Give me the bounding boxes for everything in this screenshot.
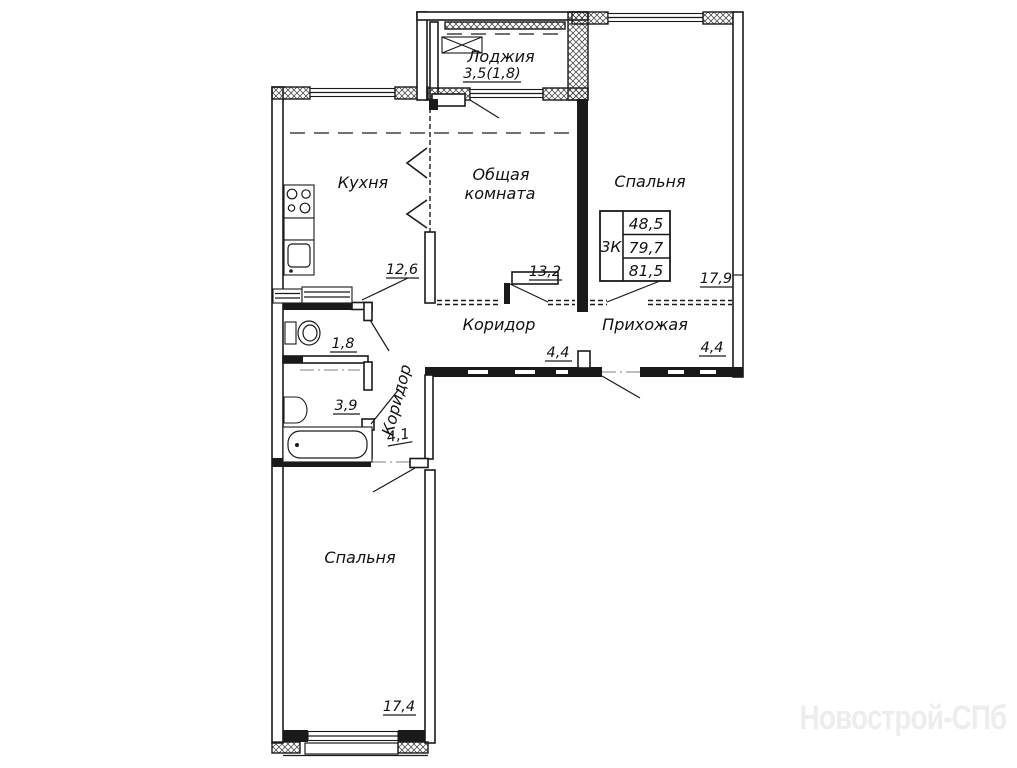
entrance-door-swing	[602, 376, 640, 398]
loggia-wall-top	[417, 12, 588, 20]
balcony-slab	[305, 743, 398, 754]
wc-door-jamb-v	[364, 303, 372, 321]
wc-door-swing	[370, 320, 389, 351]
kitchen-area: 12,6	[386, 262, 418, 278]
living-label-line2: комната	[465, 184, 536, 203]
divider-top-stub	[429, 99, 438, 110]
wall-tick	[468, 370, 488, 374]
wall-tick	[668, 370, 684, 374]
bedroom-top-hatch-left	[572, 12, 608, 24]
entrance-jamb	[578, 351, 590, 368]
wall-hatch-kitchen-left	[272, 87, 310, 99]
stove	[284, 185, 314, 218]
bedroom-door-jamb	[410, 459, 428, 468]
bathtub-drain	[295, 443, 299, 447]
hallway-label: Прихожая	[602, 315, 688, 334]
apartment-type: 3К	[601, 238, 623, 256]
room-labels: Лоджия 3,5(1,8) Кухня 12,6 Общая комната…	[324, 47, 733, 715]
living-label-line1: Общая	[473, 165, 530, 184]
bedroom-bottom-wall-right	[425, 470, 435, 743]
opening-chevron-bottom	[407, 200, 427, 228]
bedroom-top-hatch-right	[703, 12, 734, 24]
small-corridor-label-group: Коридор	[378, 362, 415, 437]
bottom-hatch-left	[272, 742, 300, 753]
bottom-hatch-right	[398, 742, 428, 753]
corridor-label: Коридор	[463, 315, 536, 334]
kitchen-label: Кухня	[338, 173, 389, 192]
loggia-wall-left	[417, 12, 427, 100]
living-area-value: 48,5	[629, 215, 664, 233]
wall-tick	[700, 370, 716, 374]
fixtures	[273, 185, 372, 462]
floor-area-value: 79,7	[629, 239, 664, 257]
bedroom-right-door-swing	[607, 281, 660, 302]
cabinet-right	[302, 287, 352, 303]
wall-tick	[515, 370, 535, 374]
loggia-wall-right-hatch	[568, 12, 588, 100]
loggia-bottom-hatch-right	[543, 88, 588, 100]
cabinet-left	[273, 289, 302, 303]
toilet	[285, 321, 320, 345]
info-table: 3К 48,5 79,7 81,5	[600, 211, 670, 281]
floor-plan-canvas: Новострой-СПб	[0, 0, 1017, 768]
hallway-bottom-wall	[640, 367, 743, 377]
corridor-area: 4,4	[546, 345, 569, 361]
bedroom-right-area: 17,9	[700, 271, 732, 287]
watermark-text: Новострой-СПб	[800, 698, 1007, 736]
bath-right-wall-top	[364, 362, 372, 390]
living-area: 13,2	[529, 264, 561, 280]
washbasin	[284, 397, 307, 423]
loggia-glazing	[445, 22, 565, 29]
bathroom-area: 3,9	[334, 398, 357, 414]
hallway-area: 4,4	[700, 340, 723, 356]
kitchen-counter	[284, 218, 314, 240]
toilet-bowl-inner	[303, 325, 317, 341]
bedroom-bottom-door-swing	[373, 468, 415, 492]
toilet-tank	[285, 322, 296, 344]
wall-tick	[556, 370, 568, 374]
bedroom-bottom-label: Спальня	[324, 548, 396, 567]
wc-area: 1,8	[331, 336, 354, 352]
kitchen-sink	[284, 240, 314, 275]
wc-bath-divider-solid	[283, 356, 303, 363]
corridor-bottom-wall	[425, 367, 602, 377]
wall-right-outer	[733, 12, 743, 377]
opening-chevron-top	[407, 148, 427, 178]
kitchen-cabinet	[273, 287, 352, 303]
balcony-door-swing	[470, 100, 499, 118]
exterior-walls	[272, 12, 743, 756]
loggia-label: Лоджия	[466, 47, 535, 66]
living-bedroom-wall	[577, 99, 588, 312]
bathtub	[283, 427, 372, 462]
living-door-swing	[510, 284, 548, 302]
bottom-wall-right	[398, 730, 425, 742]
living-door-post	[504, 283, 510, 304]
bottom-wall-left	[283, 730, 308, 742]
bedroom-bottom-area: 17,4	[383, 699, 415, 715]
kitchen-area-leader	[362, 278, 408, 300]
hallway-corner-block	[732, 367, 743, 377]
watermark: Новострой-СПб	[800, 698, 1007, 736]
small-corridor-label: Коридор	[378, 362, 415, 437]
wall-left-outer	[272, 87, 283, 743]
small-corridor-area-group: 4,1	[385, 426, 412, 446]
bedroom-right-label: Спальня	[614, 172, 686, 191]
loggia-area: 3,5(1,8)	[463, 66, 520, 82]
floor-plan-drawing: Новострой-СПб	[0, 0, 1017, 768]
sink-tap	[289, 269, 293, 273]
total-area-value: 81,5	[629, 262, 664, 280]
kitchen-corridor-stub	[425, 232, 435, 303]
small-corridor-right-wall	[425, 375, 433, 459]
